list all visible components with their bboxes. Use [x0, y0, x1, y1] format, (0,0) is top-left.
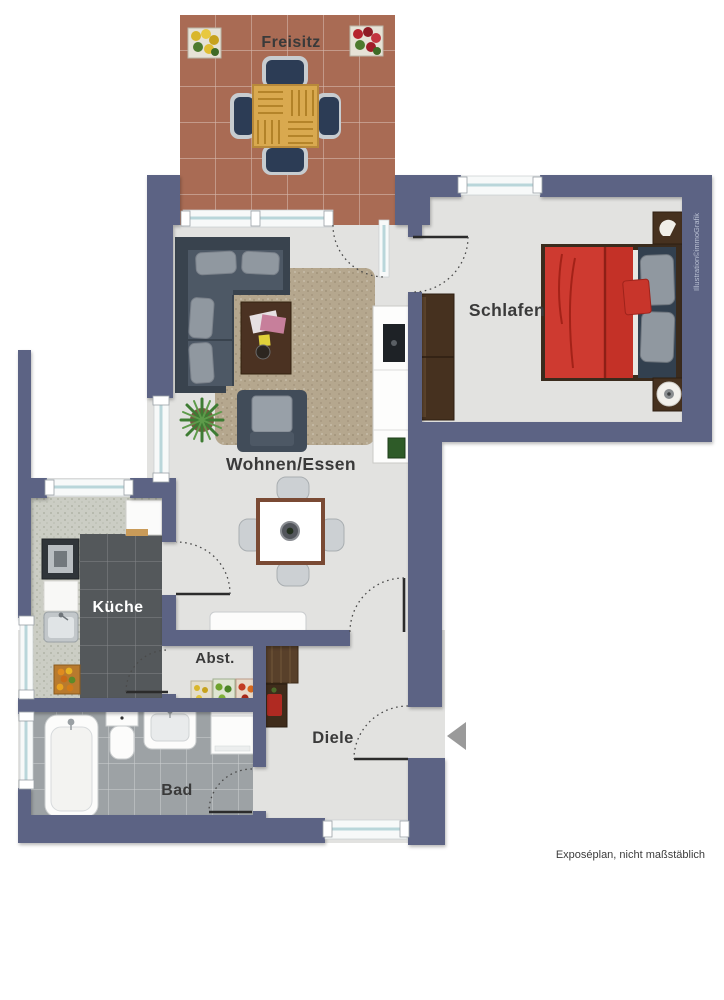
double-bed	[541, 244, 686, 381]
window-living-west	[153, 396, 169, 482]
pillow	[640, 311, 675, 362]
flower-box-left	[188, 28, 221, 58]
bathtub	[45, 715, 98, 817]
terrace-table	[253, 85, 318, 147]
flower-box-right	[350, 26, 383, 56]
bathroom	[31, 705, 254, 817]
kitchen-tile-floor	[80, 534, 162, 698]
armchair	[237, 390, 307, 452]
window-bedroom	[458, 176, 542, 195]
room-label-bad: Bad	[161, 782, 192, 799]
room-label-diele: Diele	[312, 729, 353, 747]
fruit-crate	[54, 665, 80, 694]
room-label-kueche: Küche	[93, 599, 144, 616]
accent-pillow	[623, 279, 652, 315]
coffee-table	[241, 302, 291, 374]
sideboard-plant	[388, 438, 405, 458]
plan-caption: Exposéplan, nicht maßstäblich	[556, 849, 705, 861]
stove	[42, 539, 79, 579]
toilet	[106, 711, 138, 759]
window-bath-west	[19, 712, 34, 789]
room-label-freisitz: Freisitz	[261, 34, 320, 51]
room-label-wohnen-essen: Wohnen/Essen	[226, 454, 356, 474]
window-kitchen-north	[45, 479, 133, 496]
room-label-abst: Abst.	[195, 650, 235, 667]
nightstand-bottom	[653, 378, 686, 411]
cutting-board	[126, 529, 148, 536]
window-kitchen-west	[19, 616, 34, 699]
entrance-arrow-icon	[447, 722, 466, 750]
floor-plan-svg: Freisitz Schlafen Wohnen/Essen Küche Abs…	[0, 0, 724, 1000]
tv-sideboard	[373, 306, 412, 463]
illustration-credit: Illustration©immoGrafik	[692, 213, 701, 291]
floor-plan-page: Freisitz Schlafen Wohnen/Essen Küche Abs…	[0, 0, 724, 1000]
kitchen-sink	[44, 612, 78, 642]
nightstand-top	[653, 212, 686, 244]
washing-machine	[211, 709, 254, 754]
window-living-terrace	[181, 210, 333, 227]
window-hall-south	[323, 820, 409, 839]
wardrobe	[417, 294, 454, 420]
room-label-schlafen: Schlafen	[469, 300, 545, 320]
plant	[181, 399, 223, 441]
kitchen-worktop-white	[44, 581, 78, 611]
